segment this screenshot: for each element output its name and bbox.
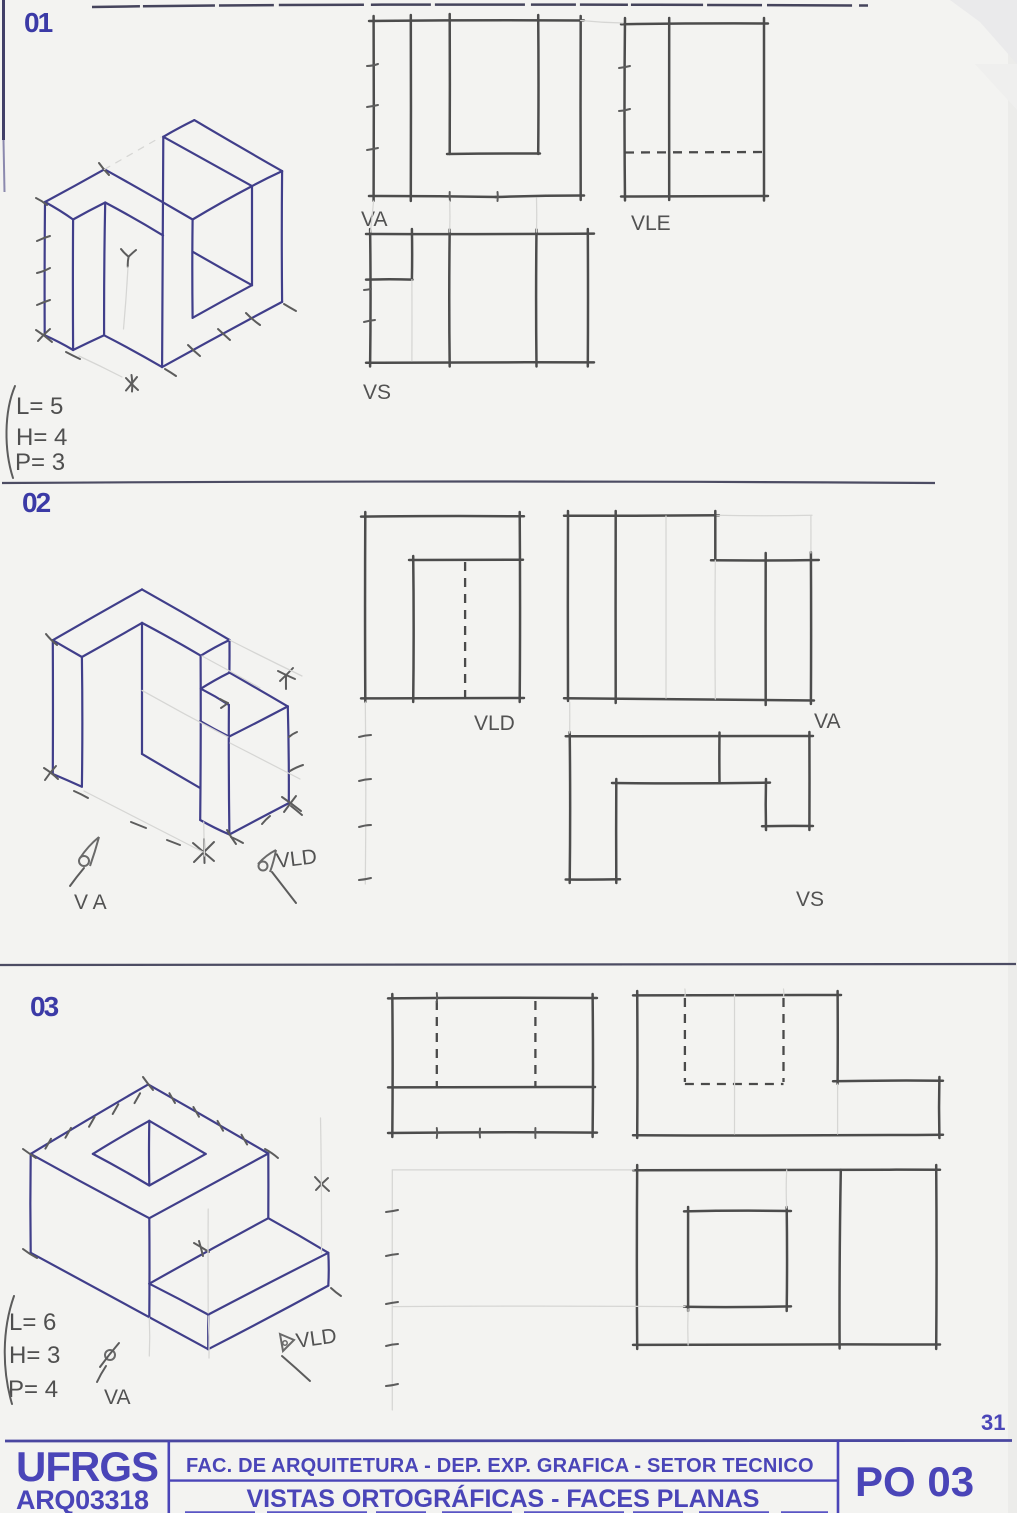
svg-text:VS: VS — [363, 381, 391, 404]
svg-text:V A: V A — [74, 891, 107, 914]
svg-text:H= 3: H= 3 — [9, 1342, 60, 1369]
svg-text:PO 03: PO 03 — [855, 1458, 974, 1505]
svg-text:VA: VA — [361, 208, 387, 231]
svg-text:H= 4: H= 4 — [16, 424, 67, 451]
svg-text:ARQ03318: ARQ03318 — [16, 1485, 149, 1513]
svg-text:VS: VS — [796, 888, 824, 911]
svg-text:02: 02 — [22, 487, 51, 518]
svg-text:31: 31 — [981, 1410, 1005, 1435]
svg-text:VLD: VLD — [474, 712, 515, 735]
svg-text:VISTAS ORTOGRÁFICAS - FACES PL: VISTAS ORTOGRÁFICAS - FACES PLANAS — [246, 1484, 759, 1513]
svg-text:UFRGS: UFRGS — [16, 1443, 158, 1490]
svg-text:FAC. DE ARQUITETURA - DEP. EXP: FAC. DE ARQUITETURA - DEP. EXP. GRAFICA … — [186, 1455, 814, 1477]
svg-text:VLE: VLE — [631, 212, 671, 235]
svg-text:L= 6: L= 6 — [9, 1309, 56, 1336]
svg-text:P= 3: P= 3 — [15, 449, 65, 476]
svg-text:VA: VA — [104, 1386, 130, 1409]
svg-text:P= 4: P= 4 — [8, 1376, 58, 1403]
svg-text:VA: VA — [814, 710, 840, 733]
svg-text:L= 5: L= 5 — [16, 393, 63, 420]
svg-text:03: 03 — [30, 991, 59, 1022]
svg-text:01: 01 — [24, 7, 53, 38]
